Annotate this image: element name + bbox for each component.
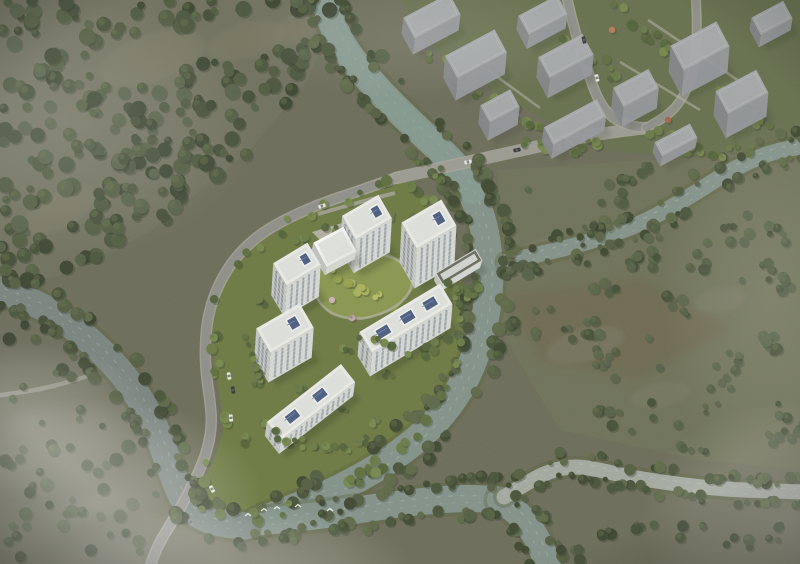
generated-scene — [0, 0, 800, 564]
aerial-rendering — [0, 0, 800, 564]
film-grain — [0, 0, 800, 564]
rendering-canvas — [0, 0, 800, 564]
atmosphere — [0, 0, 800, 564]
